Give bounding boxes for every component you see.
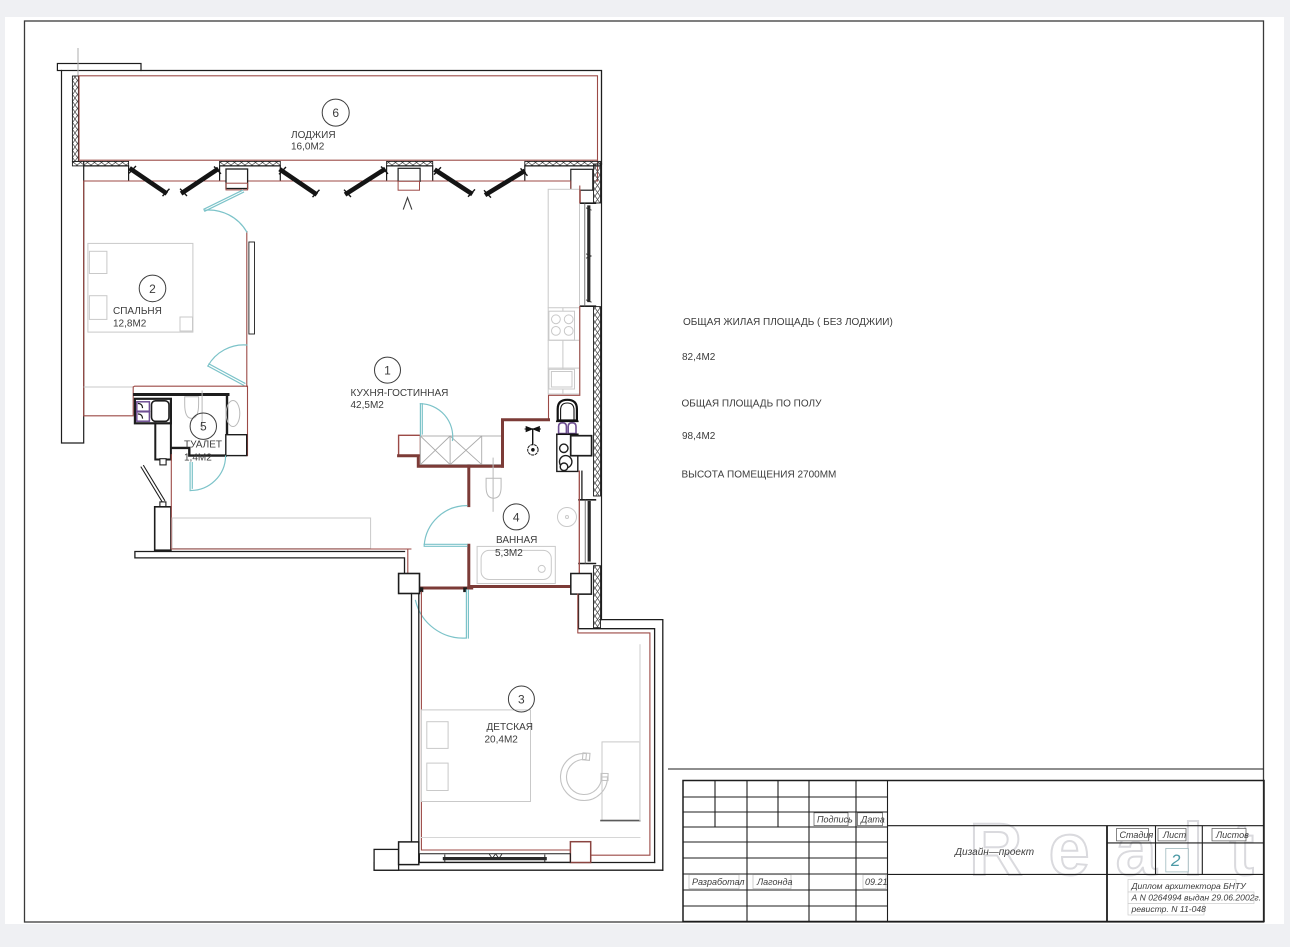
- svg-text:Дизайн—проект: Дизайн—проект: [954, 847, 1034, 858]
- svg-text:Лагонда: Лагонда: [756, 877, 792, 887]
- svg-text:Диплом архитектора БНТУ: Диплом архитектора БНТУ: [1131, 881, 1248, 891]
- svg-text:КУХНЯ-ГОСТИННАЯ: КУХНЯ-ГОСТИННАЯ: [351, 388, 449, 399]
- svg-text:2: 2: [1170, 851, 1181, 870]
- svg-text:ТУАЛЕТ: ТУАЛЕТ: [184, 440, 222, 451]
- svg-text:ВЫСОТА ПОМЕЩЕНИЯ 2700ММ: ВЫСОТА ПОМЕЩЕНИЯ 2700ММ: [682, 470, 837, 481]
- svg-text:Стадия: Стадия: [1120, 830, 1154, 840]
- svg-text:2: 2: [149, 282, 156, 296]
- svg-text:4: 4: [513, 510, 520, 524]
- svg-text:98,4М2: 98,4М2: [682, 431, 716, 442]
- svg-text:1,4М2: 1,4М2: [184, 453, 212, 464]
- svg-text:ОБЩАЯ ЖИЛАЯ ПЛОЩАДЬ ( БЕЗ ЛОДЖ: ОБЩАЯ ЖИЛАЯ ПЛОЩАДЬ ( БЕЗ ЛОДЖИИ): [683, 317, 893, 328]
- svg-text:Подпись: Подпись: [817, 815, 853, 825]
- svg-text:12,8М2: 12,8М2: [113, 319, 147, 330]
- svg-text:82,4М2: 82,4М2: [682, 352, 716, 363]
- svg-text:1: 1: [384, 364, 391, 378]
- svg-text:09.21: 09.21: [865, 877, 888, 887]
- svg-text:А N 0264994 выдан 29.06.2002г: А N 0264994 выдан 29.06.2002г.: [1131, 893, 1262, 903]
- svg-text:ЛОДЖИЯ: ЛОДЖИЯ: [291, 130, 336, 141]
- svg-text:3: 3: [518, 692, 525, 706]
- svg-text:42,5М2: 42,5М2: [351, 400, 385, 411]
- svg-text:ОБЩАЯ ПЛОЩАДЬ ПО ПОЛУ: ОБЩАЯ ПЛОЩАДЬ ПО ПОЛУ: [682, 399, 823, 410]
- svg-text:ревистр. N 11-048: ревистр. N 11-048: [1131, 904, 1207, 914]
- svg-text:16,0М2: 16,0М2: [291, 142, 325, 153]
- svg-text:Дата: Дата: [860, 815, 885, 825]
- svg-text:ВАННАЯ: ВАННАЯ: [496, 535, 537, 546]
- svg-text:6: 6: [332, 106, 339, 120]
- svg-text:5: 5: [200, 420, 207, 434]
- svg-text:Разработал: Разработал: [692, 877, 744, 887]
- svg-text:20,4М2: 20,4М2: [485, 735, 519, 746]
- svg-text:СПАЛЬНЯ: СПАЛЬНЯ: [113, 306, 162, 317]
- svg-text:5,3М2: 5,3М2: [495, 548, 523, 559]
- svg-text:ДЕТСКАЯ: ДЕТСКАЯ: [487, 722, 534, 733]
- svg-text:Лист: Лист: [1162, 830, 1187, 840]
- svg-text:Листов: Листов: [1215, 830, 1249, 840]
